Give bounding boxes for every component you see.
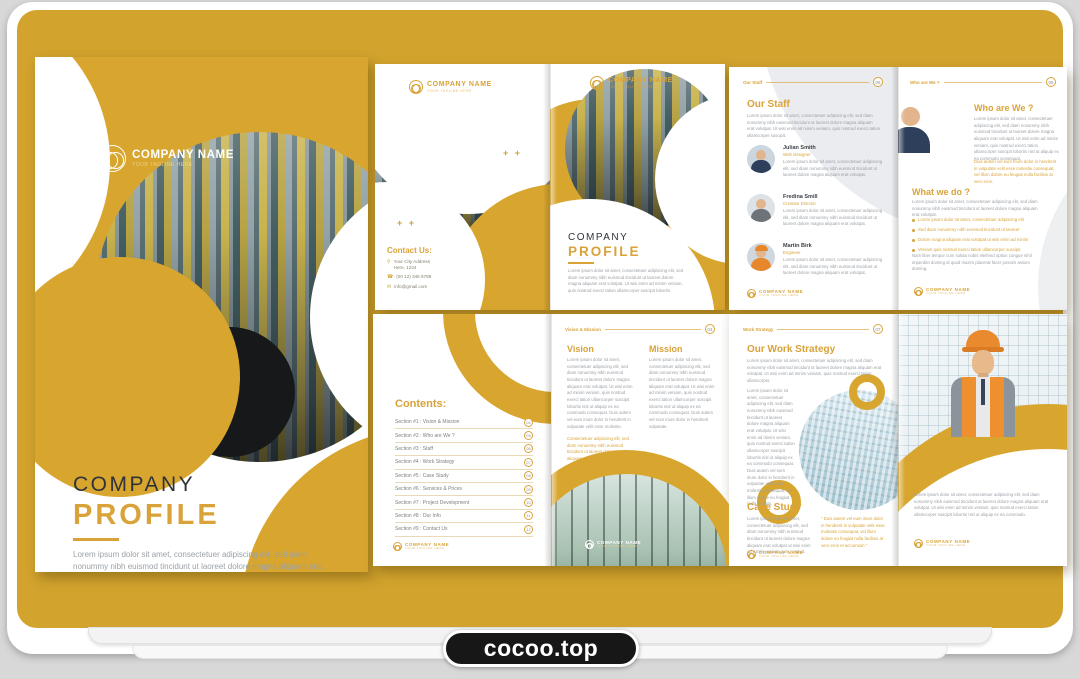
contents-row-page: 12 xyxy=(524,525,533,534)
construction-worker-photo xyxy=(938,330,1028,480)
staff-page: Our Staff 06 Our Staff Lorem ipsum dolor… xyxy=(729,67,898,310)
company-logo-tagline: YOUR TAGLINE HERE xyxy=(608,85,673,89)
contents-row: Section #7 : Project Development 10 xyxy=(395,496,533,509)
worker-tie xyxy=(981,379,985,405)
hard-hat xyxy=(966,330,1000,349)
contents-row-label: Section #2 : Who are We ? xyxy=(395,433,455,439)
contents-row: Section #1 : Vision & Mission 04 xyxy=(395,416,533,429)
contents-row-label: Section #1 : Vision & Mission xyxy=(395,419,459,425)
phone-icon: ☎ xyxy=(387,274,393,281)
location-icon: ⚲ xyxy=(387,259,391,266)
contents-row-label: Section #7 : Project Development xyxy=(395,500,469,506)
contents-row-page: 11 xyxy=(524,511,533,520)
contents-row: Section #9 : Contact Us 12 xyxy=(395,523,533,536)
staff-member-photo xyxy=(747,243,775,271)
page-header-line xyxy=(605,329,701,330)
page-header-line xyxy=(777,329,869,330)
company-logo-icon xyxy=(914,287,923,296)
mockup-stage: COMPANY NAME YOUR TAGLINE HERE COMPANY P… xyxy=(0,0,1080,679)
staff-member-bio: Lorem ipsum dolor sit amet, consectetuer… xyxy=(783,257,887,277)
company-logo: COMPANY NAME YOUR TAGLINE HERE xyxy=(914,287,970,296)
staff-member-role: Creative Director xyxy=(783,201,887,206)
brochure-cover-page: COMPANY NAME YOUR TAGLINE HERE COMPANY P… xyxy=(35,57,368,572)
contact-phone: (00 12) 345 6789 xyxy=(396,274,431,280)
mission-body: Lorem ipsum dolor sit amet, consectetuer… xyxy=(649,357,715,430)
intro-title-line2: PROFILE xyxy=(568,244,686,259)
company-logo-icon xyxy=(409,80,423,94)
bullet-dot-icon xyxy=(912,219,915,222)
watermark-badge: cocoo.top xyxy=(443,630,639,667)
page-header: Our Staff 06 xyxy=(743,77,883,87)
who-are-we-page: Who are We ? 05 Who are We ? Lorem ipsum… xyxy=(898,67,1067,310)
company-logo: COMPANY NAME YOUR TAGLINE HERE xyxy=(393,542,449,551)
staff-member-row: Fredina Smill Creative Director Lorem ip… xyxy=(747,194,887,228)
staff-spread: Our Staff 06 Our Staff Lorem ipsum dolor… xyxy=(729,67,1067,310)
what-we-do-footer: Nam liber tempor cum soluta nobis eleife… xyxy=(912,253,1032,273)
vision-heading: Vision xyxy=(567,344,594,354)
who-body: Lorem ipsum dolor sit amet, consectetuer… xyxy=(974,116,1060,163)
company-logo-icon xyxy=(393,542,402,551)
contents-row: Section #4 : Work Strategy 07 xyxy=(395,456,533,469)
staff-list: Julian Smith Web Designer Lorem ipsum do… xyxy=(747,145,887,292)
page-header-line xyxy=(766,82,869,83)
intro-title-line1: COMPANY xyxy=(568,232,686,243)
bullet-row: Sed diam nonummy nibh euismod tincidunt … xyxy=(912,227,1046,234)
intro-title-block: COMPANY PROFILE Lorem ipsum dolor sit am… xyxy=(568,232,686,295)
who-note: Duis autem vel eum iriure dolor in hendr… xyxy=(974,159,1060,186)
page-header-label: Who are We ? xyxy=(910,80,940,85)
company-logo-icon xyxy=(747,550,756,559)
page-number-badge: 07 xyxy=(873,324,883,334)
company-logo-tagline: YOUR TAGLINE HERE xyxy=(926,292,970,296)
case-study-heading: Case Study xyxy=(747,502,801,513)
building-photo xyxy=(799,390,898,510)
company-logo-name: COMPANY NAME xyxy=(608,77,673,85)
plus-decoration: + + xyxy=(503,148,522,158)
bullet-text: Sed diam nonummy nibh euismod tincidunt … xyxy=(918,227,1019,234)
staff-member-name: Martin Birk xyxy=(783,243,887,249)
closing-body: Lorem ipsum dolor sit amet, consectetuer… xyxy=(914,492,1052,519)
contents-row: Section #5 : Case Study 08 xyxy=(395,470,533,483)
company-logo: COMPANY NAME YOUR TAGLINE HERE xyxy=(590,76,673,90)
what-we-do-heading: What we do ? xyxy=(912,187,970,197)
company-logo-tagline: YOUR TAGLINE HERE xyxy=(597,545,641,549)
bullet-dot-icon xyxy=(912,229,915,232)
case-study-quote: “ Duis autem vel eum iriure dolor in hen… xyxy=(821,516,887,549)
company-logo-tagline: YOUR TAGLINE HERE xyxy=(759,294,803,298)
cover-title-block: COMPANY PROFILE Lorem ipsum dolor sit am… xyxy=(73,473,335,572)
work-strategy-page: Work Strategy 07 Our Work Strategy Lorem… xyxy=(729,314,898,566)
cover-title-line1: COMPANY xyxy=(73,473,335,497)
intro-left-page: COMPANY NAME YOUR TAGLINE HERE + + + + C… xyxy=(375,64,550,310)
company-logo-icon xyxy=(585,540,594,549)
company-logo-icon xyxy=(747,289,756,298)
company-logo-name: COMPANY NAME xyxy=(132,149,234,163)
page-header: Work Strategy 07 xyxy=(743,324,883,334)
contents-row-page: 06 xyxy=(524,444,533,453)
page-number-badge: 06 xyxy=(873,77,883,87)
company-logo-tagline: YOUR TAGLINE HERE xyxy=(926,544,970,548)
vision-body: Lorem ipsum dolor sit amet, consectetuer… xyxy=(567,357,637,430)
strategy-intro: Lorem ipsum dolor sit amet, consectetuer… xyxy=(747,358,885,385)
company-logo-tagline: YOUR TAGLINE HERE xyxy=(427,89,492,93)
page-number-badge: 04 xyxy=(705,324,715,334)
contact-heading: Contact Us: xyxy=(387,246,467,255)
company-logo: COMPANY NAME YOUR TAGLINE HERE xyxy=(585,540,641,549)
contents-row-label: Section #6 : Services & Prices xyxy=(395,486,462,492)
strategy-spread: Work Strategy 07 Our Work Strategy Lorem… xyxy=(729,314,1067,566)
strategy-side-text: Lorem ipsum dolor sit amet, consectetuer… xyxy=(747,388,795,508)
contents-row-label: Section #9 : Contact Us xyxy=(395,526,448,532)
contents-row: Section #2 : Who are We ? 05 xyxy=(395,429,533,442)
contents-row-label: Section #5 : Case Study xyxy=(395,473,449,479)
intro-body-text: Lorem ipsum dolor sit amet, consectetuer… xyxy=(568,268,686,295)
company-logo-name: COMPANY NAME xyxy=(427,81,492,89)
cover-body-text: Lorem ipsum dolor sit amet, consectetuer… xyxy=(73,549,335,572)
helmet-icon xyxy=(755,245,768,251)
contents-row: Section #6 : Services & Prices 09 xyxy=(395,483,533,496)
staff-member-name: Fredina Smill xyxy=(783,194,887,200)
cover-title-line2: PROFILE xyxy=(73,499,335,532)
who-heading: Who are We ? xyxy=(974,103,1033,113)
contact-email: info@gmail.com xyxy=(394,284,427,290)
company-logo-tagline: YOUR TAGLINE HERE xyxy=(759,555,803,559)
contact-block: Contact Us: ⚲ Your City AddressHere, 123… xyxy=(387,246,467,293)
email-icon: ✉ xyxy=(387,284,391,291)
intro-spread: COMPANY NAME YOUR TAGLINE HERE + + + + C… xyxy=(375,64,725,310)
contents-row-page: 10 xyxy=(524,498,533,507)
staff-member-row: Martin Birk Engineer Lorem ipsum dolor s… xyxy=(747,243,887,277)
contents-spread: Contents: Section #1 : Vision & Mission … xyxy=(373,314,729,566)
mission-heading: Mission xyxy=(649,344,683,354)
gold-rule xyxy=(73,538,119,541)
company-logo: COMPANY NAME YOUR TAGLINE HERE xyxy=(409,80,492,94)
bullet-dot-icon xyxy=(912,239,915,242)
page-number-badge: 05 xyxy=(1046,77,1056,87)
staff-member-role: Web Designer xyxy=(783,152,887,157)
what-we-do-bullets: Lorem ipsum dolor sit amet, consectetuer… xyxy=(912,217,1046,258)
staff-member-name: Julian Smith xyxy=(783,145,887,151)
contents-row-page: 07 xyxy=(524,458,533,467)
page-header-line xyxy=(944,82,1042,83)
contents-row: Section #3 : Staff 06 xyxy=(395,443,533,456)
contact-address: Your City AddressHere, 1234 xyxy=(394,259,430,271)
page-header-label: Work Strategy xyxy=(743,327,773,332)
contents-row-page: 08 xyxy=(524,471,533,480)
bullet-row: Dolore magna aliquam erat volutpat ut wi… xyxy=(912,237,1046,244)
bullet-text: Lorem ipsum dolor sit amet, consectetuer… xyxy=(918,217,1024,224)
contents-row: Section #8 : Our Info 11 xyxy=(395,510,533,523)
staff-intro: Lorem ipsum dolor sit amet, consectetuer… xyxy=(747,113,881,140)
page-header-label: Our Staff xyxy=(743,80,762,85)
strategy-heading: Our Work Strategy xyxy=(747,344,835,355)
company-logo: COMPANY NAME YOUR TAGLINE HERE xyxy=(99,145,234,172)
plus-decoration: + + xyxy=(397,218,416,228)
company-logo-tagline: YOUR TAGLINE HERE xyxy=(132,162,234,168)
staff-member-row: Julian Smith Web Designer Lorem ipsum do… xyxy=(747,145,887,179)
contents-page: Contents: Section #1 : Vision & Mission … xyxy=(373,314,551,566)
company-logo: COMPANY NAME YOUR TAGLINE HERE xyxy=(914,539,970,548)
worker-face xyxy=(972,350,994,375)
vision-note: Consectetuer adipiscing elit, sed diam n… xyxy=(567,436,637,463)
staff-member-bio: Lorem ipsum dolor sit amet, consectetuer… xyxy=(783,159,887,179)
contents-row-label: Section #4 : Work Strategy xyxy=(395,459,454,465)
page-header-label: Vision & Mission xyxy=(565,327,601,332)
contents-row-page: 05 xyxy=(524,431,533,440)
company-logo: COMPANY NAME YOUR TAGLINE HERE xyxy=(747,289,803,298)
staff-member-role: Engineer xyxy=(783,250,887,255)
vision-mission-page: Vision & Mission 04 Vision Lorem ipsum d… xyxy=(551,314,729,566)
staff-member-photo xyxy=(747,194,775,222)
contents-yellow-ring xyxy=(443,314,551,424)
company-logo-icon xyxy=(914,539,923,548)
page-header: Vision & Mission 04 xyxy=(565,324,715,334)
company-logo-icon xyxy=(99,145,126,172)
contents-row-label: Section #3 : Staff xyxy=(395,446,433,452)
contents-row-page: 04 xyxy=(524,418,533,427)
company-logo-icon xyxy=(590,76,604,90)
contents-list: Section #1 : Vision & Mission 04 Section… xyxy=(395,416,533,537)
staff-heading: Our Staff xyxy=(747,99,790,110)
staff-member-photo xyxy=(747,145,775,173)
contents-row-page: 09 xyxy=(524,485,533,494)
bullet-text: Dolore magna aliquam erat volutpat ut wi… xyxy=(918,237,1028,244)
company-logo-tagline: YOUR TAGLINE HERE xyxy=(405,547,449,551)
gold-rule xyxy=(568,262,594,264)
contents-row-label: Section #8 : Our Info xyxy=(395,513,441,519)
contents-heading: Contents: xyxy=(395,398,446,410)
company-logo: COMPANY NAME YOUR TAGLINE HERE xyxy=(747,550,803,559)
bullet-row: Lorem ipsum dolor sit amet, consectetuer… xyxy=(912,217,1046,224)
closing-page: Lorem ipsum dolor sit amet, consectetuer… xyxy=(898,314,1067,566)
page-header: Who are We ? 05 xyxy=(910,77,1056,87)
staff-member-bio: Lorem ipsum dolor sit amet, consectetuer… xyxy=(783,208,887,228)
what-we-do-body: Lorem ipsum dolor sit amet, consectetuer… xyxy=(912,199,1046,219)
intro-right-page: COMPANY NAME YOUR TAGLINE HERE COMPANY P… xyxy=(550,64,725,310)
